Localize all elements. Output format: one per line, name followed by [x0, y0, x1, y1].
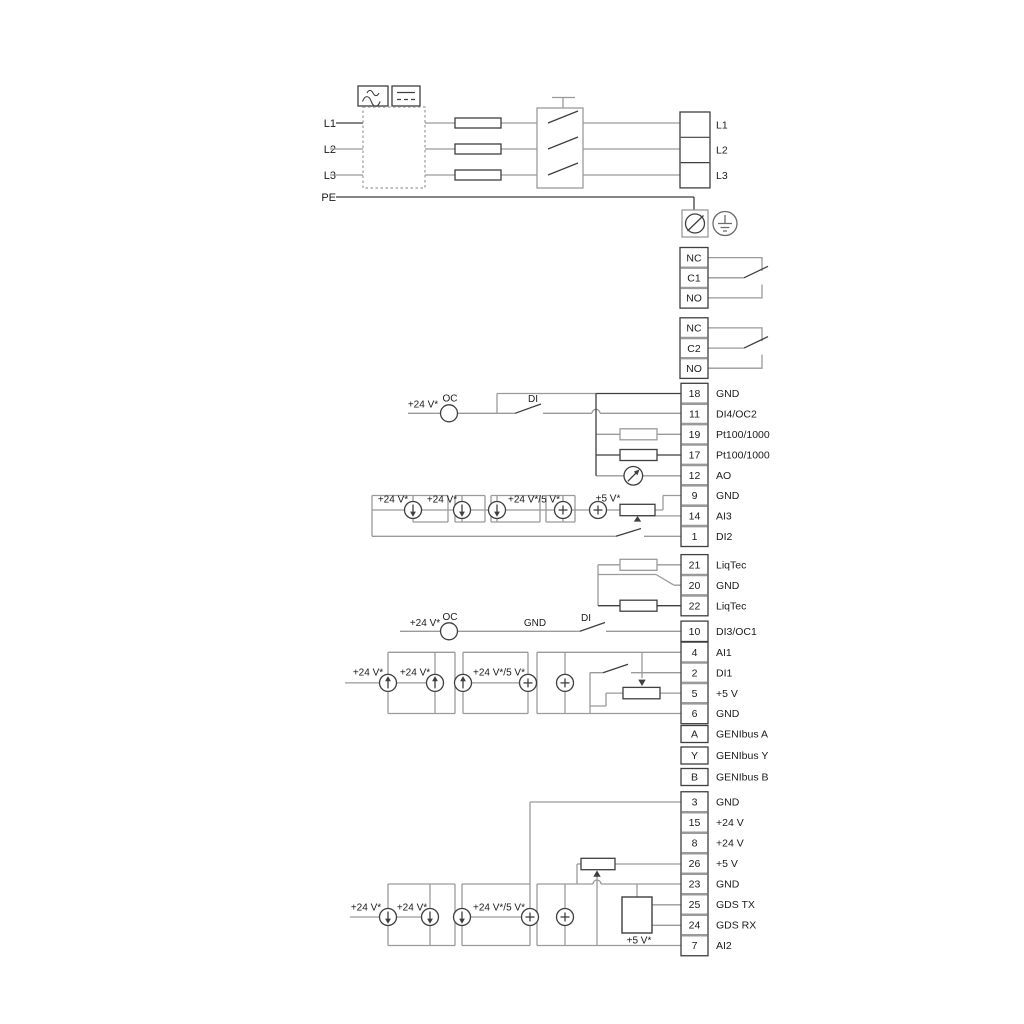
label-pe: PE	[321, 192, 336, 204]
voltage-source-icon	[520, 674, 537, 691]
v24-label-io2-1: +24 V*	[351, 903, 381, 914]
terminal-number: 22	[689, 600, 701, 612]
pt100-resistor-17	[620, 450, 657, 461]
terminal-label: GENIbus Y	[716, 750, 768, 762]
terminal-label: +24 V	[716, 817, 744, 829]
terminal-label: LiqTec	[716, 560, 746, 572]
terminal-number: B	[691, 772, 698, 784]
terminal-label: GND	[716, 580, 740, 592]
dc-symbol-box	[392, 86, 420, 106]
current-source-icon	[455, 674, 472, 691]
voltage-source-icon	[590, 502, 607, 519]
liqtec-resistor-21	[620, 559, 657, 570]
terminal-label: L3	[716, 170, 728, 182]
power-block	[680, 112, 710, 188]
relay2-wires	[708, 328, 762, 368]
current-source-icon	[422, 909, 439, 926]
wiring-diagram: L1 L2 L3 PE	[0, 0, 1024, 1024]
terminal-number: 12	[689, 470, 701, 482]
ai1-potentiometer	[623, 687, 660, 698]
terminal-number: 9	[692, 490, 698, 502]
terminal-label: LiqTec	[716, 600, 746, 612]
voltage-source-icon	[557, 674, 574, 691]
oc-label-di4: OC	[443, 394, 458, 405]
terminal-number: 26	[689, 858, 701, 870]
terminal-label: GENIbus A	[716, 729, 768, 741]
open-collector-icon	[441, 623, 458, 640]
gds-sensor-box	[622, 897, 652, 933]
v24-5-label-ai1: +24 V*/5 V*	[473, 668, 525, 679]
ai1-wiper-arrow	[638, 680, 645, 686]
terminal-label: Pt100/1000	[716, 449, 770, 461]
ai3-wiper-arrow	[634, 516, 641, 522]
terminal-label: DI4/OC2	[716, 409, 757, 421]
current-source-icon	[454, 502, 471, 519]
di-label-di4: DI	[528, 394, 538, 405]
terminal-number: 18	[689, 388, 701, 400]
terminal-number: 23	[689, 879, 701, 891]
disconnect-switch-box	[537, 108, 583, 188]
di2-switch-blade	[616, 529, 641, 537]
ai3-potentiometer	[620, 504, 655, 515]
terminal-number: 7	[692, 940, 698, 952]
ai2-potentiometer	[581, 858, 615, 869]
terminal-number: NO	[686, 363, 702, 375]
liqtec-resistor-22	[620, 600, 657, 611]
open-collector-icon	[441, 405, 458, 422]
terminal-number: 24	[689, 920, 701, 932]
v24-label-ai3-1: +24 V*	[378, 495, 408, 506]
v24-label-ai3-2: +24 V*	[427, 495, 457, 506]
filter-box	[363, 107, 425, 188]
voltage-source-icon	[557, 909, 574, 926]
terminal-number: C2	[687, 343, 701, 355]
terminal-label: AI1	[716, 647, 732, 659]
di-label-di3: DI	[581, 613, 591, 624]
terminal-number: A	[691, 729, 698, 741]
terminal-label: AI3	[716, 511, 732, 523]
terminal-number: 17	[689, 449, 701, 461]
source-symbols	[380, 405, 607, 926]
di4-switch-blade	[515, 404, 541, 413]
current-source-icon	[405, 502, 422, 519]
mains-wires-dark	[336, 123, 694, 210]
terminal-number: Y	[691, 750, 698, 762]
io2-section: +24 V* +24 V* +24 V*/5 V* +5 V*	[350, 802, 681, 947]
terminal-number: 15	[689, 817, 701, 829]
terminal-label: DI3/OC1	[716, 626, 757, 638]
terminal-number: 14	[689, 511, 701, 523]
terminal-label: +24 V	[716, 838, 744, 850]
current-source-icon	[427, 674, 444, 691]
terminal-number: 8	[692, 838, 698, 850]
terminal-number: NC	[686, 252, 702, 264]
terminal-label: L2	[716, 145, 728, 157]
current-source-icon	[380, 909, 397, 926]
terminal-label: GND	[716, 490, 740, 502]
mains-section: L1 L2 L3 PE	[321, 86, 737, 237]
relay2-blade	[744, 337, 768, 349]
terminal-label: GDS TX	[716, 899, 755, 911]
relay-section	[708, 258, 768, 369]
terminal-number: 11	[689, 409, 700, 421]
terminal-number: 2	[692, 667, 698, 679]
terminal-label: L1	[716, 119, 728, 131]
liqtec-section	[598, 559, 681, 611]
terminal-label: DI1	[716, 667, 733, 679]
label-l1-in: L1	[324, 118, 336, 130]
terminal-number: 5	[692, 688, 698, 700]
terminal-label: GENIbus B	[716, 772, 769, 784]
terminal-number: NC	[686, 323, 702, 335]
fuse-l1	[455, 118, 501, 128]
terminal-number: 6	[692, 708, 698, 720]
v24-label-ai1-1: +24 V*	[353, 668, 383, 679]
terminal-number: 19	[689, 429, 701, 441]
terminal-number: NO	[686, 293, 702, 305]
terminal-number: 25	[689, 899, 701, 911]
voltage-source-icon	[555, 502, 572, 519]
terminal-number: 10	[689, 626, 701, 638]
v24-label-di4: +24 V*	[408, 400, 438, 411]
terminal-label: +5 V	[716, 858, 738, 870]
terminal-label: DI2	[716, 531, 733, 543]
terminal-number: C1	[687, 273, 701, 285]
ac-symbol-box	[358, 86, 388, 106]
terminal-label: GND	[716, 797, 740, 809]
current-source-icon	[380, 674, 397, 691]
terminal-label: +5 V	[716, 688, 738, 700]
label-l3-in: L3	[324, 170, 336, 182]
terminal-number: 20	[689, 580, 701, 592]
label-l2-in: L2	[324, 144, 336, 156]
fuse-l3	[455, 170, 501, 180]
relay1-wires	[708, 258, 762, 298]
v24-label-ai1-2: +24 V*	[400, 668, 430, 679]
terminal-strips: L1L2L3NCC1NONCC2NO18GND11DI4/OC219Pt100/…	[680, 112, 770, 956]
ai2-wiper-arrow	[593, 870, 600, 876]
terminal-number: 21	[689, 560, 701, 572]
v24-5-label-io2: +24 V*/5 V*	[473, 903, 525, 914]
terminal-label: GND	[716, 708, 740, 720]
oc-label-di3: OC	[443, 612, 458, 623]
pt100-resistor-19	[620, 429, 657, 440]
relay1-blade	[744, 266, 768, 278]
v5-label-io2: +5 V*	[627, 936, 652, 947]
current-source-icon	[489, 502, 506, 519]
terminal-label: GDS RX	[716, 920, 756, 932]
terminal-number: 3	[692, 797, 698, 809]
terminal-label: Pt100/1000	[716, 429, 770, 441]
voltage-source-icon	[522, 909, 539, 926]
terminal-label: AI2	[716, 940, 732, 952]
mains-wires	[330, 98, 680, 176]
fuse-l2	[455, 144, 501, 154]
terminal-label: GND	[716, 388, 740, 400]
gnd-label-di3: GND	[524, 618, 546, 629]
v24-5-label-ai3: +24 V*/5 V*	[508, 495, 560, 506]
di1-switch-blade	[603, 664, 628, 673]
v24-label-di3: +24 V*	[410, 618, 440, 629]
terminal-label: AO	[716, 470, 731, 482]
terminal-number: 4	[692, 647, 698, 659]
terminal-label: GND	[716, 879, 740, 891]
current-source-icon	[454, 909, 471, 926]
terminal-number: 1	[692, 531, 698, 543]
